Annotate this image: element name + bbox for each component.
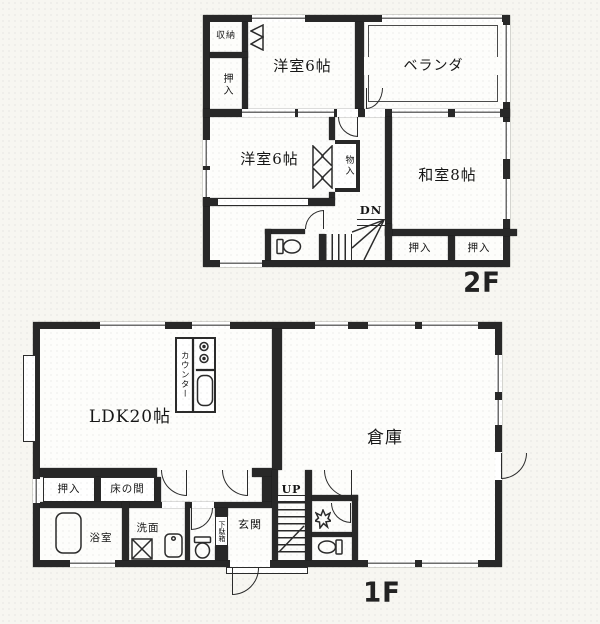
window <box>33 479 40 503</box>
oshiire-label: 押入 <box>43 477 95 502</box>
western-room-a-label: 洋室6帖 <box>250 57 355 75</box>
wall <box>215 508 228 516</box>
toilet-door-arc <box>331 503 351 523</box>
wall <box>305 470 312 560</box>
wall <box>312 532 352 537</box>
stairs-diagonal <box>278 502 305 553</box>
stove-burners-icon <box>196 340 212 366</box>
floor1-plan: カウンター LDK20帖 倉庫 押入 床の間 浴 <box>33 322 502 567</box>
entrance-door-arc <box>232 568 259 595</box>
wall <box>215 546 228 560</box>
door-opening <box>162 502 185 508</box>
window <box>252 15 305 22</box>
warehouse-label: 倉庫 <box>340 429 430 447</box>
wall <box>272 329 282 470</box>
washbasin-icon <box>164 533 183 558</box>
door-opening <box>365 109 385 117</box>
veranda-label: ベランダ <box>364 57 503 75</box>
floor1-label: 1F <box>352 577 412 609</box>
toilet-door-arc <box>305 210 324 229</box>
stairs-dn-label: DN <box>355 204 387 218</box>
window <box>503 25 510 102</box>
wall <box>385 224 392 260</box>
washroom-label: 洗面 <box>131 522 165 534</box>
bathtub-icon <box>55 512 82 554</box>
wall <box>252 468 272 477</box>
wall <box>40 468 157 477</box>
exterior-door-arc <box>501 453 527 479</box>
window <box>382 15 502 22</box>
folding-door-icon <box>312 145 333 189</box>
wall <box>242 58 248 109</box>
wall-opening <box>218 198 308 206</box>
hand-wash-basin-icon <box>315 509 331 529</box>
window <box>495 400 502 425</box>
wall <box>385 229 517 236</box>
wall <box>40 502 272 508</box>
window <box>503 122 510 159</box>
window <box>495 355 502 392</box>
monoire-label: 物入 <box>339 146 357 186</box>
counter-divider <box>196 369 214 371</box>
japanese-room-label: 和室8帖 <box>392 166 503 184</box>
hall-door-arc <box>161 470 187 496</box>
stairs-treads <box>325 234 352 260</box>
oshiire-a-label: 押入 <box>392 238 448 258</box>
entrance-hall-door-arc <box>222 470 248 496</box>
toilet-icon <box>276 238 302 255</box>
bay-window <box>23 355 36 442</box>
door-opening <box>230 560 270 567</box>
oshiire-b-label: 押入 <box>455 238 503 258</box>
oshiire-left-label: 押入 <box>215 64 237 106</box>
counter-divider <box>192 339 194 411</box>
kitchen-sink-icon <box>196 374 214 407</box>
toilet-icon <box>193 536 212 559</box>
room-door-arc <box>338 117 358 137</box>
veranda-door-arc <box>366 88 383 109</box>
door-opening <box>337 109 358 117</box>
closet-top-label: 収納 <box>210 28 242 44</box>
window <box>203 140 210 166</box>
wall <box>185 502 190 560</box>
window <box>315 322 348 329</box>
wall <box>122 502 129 560</box>
window <box>100 322 165 329</box>
window <box>392 109 448 117</box>
window <box>422 560 478 567</box>
entrance-label: 玄関 <box>228 518 272 531</box>
washing-machine-icon <box>131 538 153 560</box>
wall <box>448 236 455 260</box>
wall <box>262 477 272 502</box>
window <box>422 322 478 329</box>
window <box>242 109 295 117</box>
window <box>203 170 210 197</box>
wall <box>355 22 364 109</box>
floor2-label: 2F <box>452 267 512 299</box>
toilet-door-arc <box>191 508 213 530</box>
wall <box>329 117 335 140</box>
floorplan-scan: 収納 押入 洋室6帖 ベランダ 洋室6帖 物入 <box>0 0 600 624</box>
window <box>503 179 510 219</box>
window <box>220 260 262 267</box>
wall <box>265 229 305 234</box>
floor2-plan: 収納 押入 洋室6帖 ベランダ 洋室6帖 物入 <box>203 15 510 267</box>
winder-stairs-icon <box>352 219 385 260</box>
window <box>368 560 415 567</box>
folding-door-icon <box>250 24 264 51</box>
window <box>455 109 500 117</box>
bath-label: 浴室 <box>84 532 118 545</box>
tokonoma-label: 床の間 <box>100 477 155 502</box>
counter-label: カウンター <box>177 341 191 409</box>
window <box>298 109 334 117</box>
window <box>192 322 230 329</box>
wall <box>352 495 358 560</box>
stair-landing <box>278 495 305 502</box>
wall <box>265 229 271 260</box>
wall <box>385 117 392 236</box>
window <box>70 560 115 567</box>
ldk-label: LDK20帖 <box>70 408 190 426</box>
wall <box>155 477 161 502</box>
shoe-cabinet-label: 下駄箱 <box>216 517 227 545</box>
window <box>368 322 415 329</box>
warehouse-door-arc <box>324 470 352 498</box>
toilet-icon <box>317 539 343 555</box>
